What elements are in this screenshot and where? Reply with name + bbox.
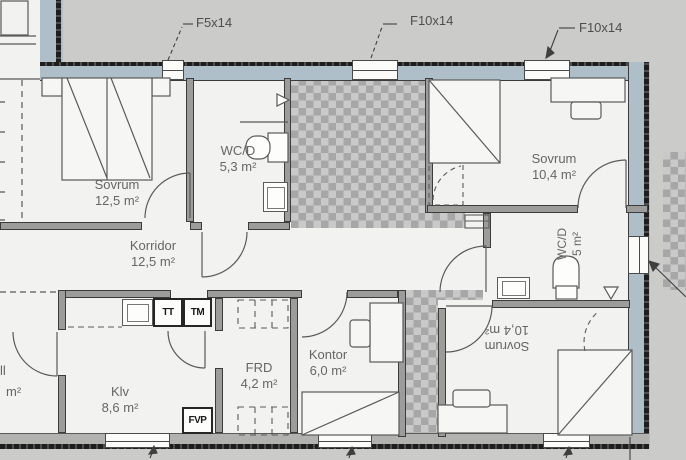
checker-strip-nook — [438, 290, 483, 300]
room-name-fragment: ll — [0, 363, 14, 379]
room-area: 12,5 m² — [108, 254, 198, 270]
door-kontor — [302, 292, 347, 337]
window-label-f5x14: F5x14 — [196, 15, 232, 30]
door-wcd-nw — [202, 232, 247, 277]
window-south-klv — [105, 433, 170, 448]
window-label-f10x14-a: F10x14 — [410, 13, 453, 28]
room-label-sovrum-ne: Sovrum 10,4 m² — [510, 151, 598, 183]
room-area: 8,6 m² — [85, 400, 155, 416]
room-area-fragment: m² — [6, 384, 36, 400]
window-south-sovrum — [543, 433, 590, 448]
wall-sovse-north — [492, 300, 630, 308]
closet-dashed-se — [584, 311, 599, 351]
room-name: FRD — [228, 360, 290, 376]
bed-single-ne — [429, 80, 500, 163]
wall-corridor-north-2 — [190, 222, 202, 230]
room-label-wcd-e: WC/D 5 m² — [555, 208, 585, 280]
room-area: 4,2 m² — [228, 376, 290, 392]
wall-wcde-west — [483, 213, 491, 248]
wall-sovne-south-2 — [626, 205, 648, 213]
sovrum-se-furniture — [438, 350, 632, 435]
room-name: Klv — [85, 384, 155, 400]
wall-northwest-hatch — [56, 0, 61, 64]
room-name: Sovrum — [72, 177, 162, 193]
room-name: Korridor — [108, 238, 198, 254]
window-f10x14-b — [524, 60, 570, 80]
room-name: Kontor — [292, 347, 364, 363]
window-f5x14 — [162, 60, 184, 80]
wall-sovse-west — [438, 308, 446, 437]
room-name: WC/D — [555, 208, 570, 280]
checker-strip-east — [663, 152, 686, 290]
wall-kontor-east — [398, 290, 406, 437]
room-area: 10,4 m² — [462, 322, 552, 338]
wall-klv-frd-2 — [215, 368, 223, 433]
room-name: Sovrum — [462, 338, 552, 354]
dryer-box: TT — [153, 298, 183, 327]
room-label-klv: Klv 8,6 m² — [85, 384, 155, 416]
bed-double — [42, 78, 170, 180]
wall-corridor-north-1 — [0, 222, 142, 230]
window-east-wcd — [628, 236, 649, 274]
desk-ne — [551, 78, 625, 119]
checker-zone-center — [291, 78, 425, 228]
room-area: 6,0 m² — [292, 363, 364, 379]
room-label-kontor: Kontor 6,0 m² — [292, 347, 364, 379]
wall-corridor-south-1 — [58, 290, 171, 298]
floor-plan: TT TM FVP — [0, 0, 686, 460]
checker-strip-kontor — [406, 290, 438, 437]
wall-hall-east-2 — [58, 375, 66, 433]
room-label-sovrum-se: Sovrum 10,4 m² — [462, 322, 552, 354]
laundry-sink — [122, 299, 153, 326]
wall-corridor-south-3 — [347, 290, 398, 298]
room-label-hall-fragment: ll — [0, 363, 14, 379]
room-name: Sovrum — [510, 151, 598, 167]
door-nook — [440, 246, 486, 292]
closet-dashed-ne — [429, 163, 463, 205]
wall-sovnw-wcd — [186, 78, 194, 222]
room-label-sovrum-nw: Sovrum 12,5 m² — [72, 177, 162, 209]
room-name: WC/D — [202, 143, 274, 159]
door-hall — [13, 332, 57, 376]
wall-corridor-north-3 — [248, 222, 290, 230]
washer-label: TM — [191, 307, 204, 318]
heatpump-label: FVP — [189, 415, 207, 426]
wcd-e-sink — [497, 277, 530, 299]
room-label-korridor: Korridor 12,5 m² — [108, 238, 198, 270]
room-area: 5 m² — [570, 208, 585, 280]
wall-sovne-west — [425, 78, 433, 213]
room-area: 12,5 m² — [72, 193, 162, 209]
window-south-kontor — [318, 433, 372, 448]
window-f10x14-a — [352, 60, 398, 80]
window-label-f10x14-b: F10x14 — [579, 20, 622, 35]
door-klv — [168, 331, 205, 368]
wall-hall-east-1 — [58, 290, 66, 330]
wall-klv-frd-1 — [215, 298, 223, 331]
exterior-ground-bottom — [0, 448, 686, 460]
room-area: 5,3 m² — [202, 159, 274, 175]
wcd-e-sink-basin — [502, 281, 526, 296]
wcd-nw-sink-basin — [267, 187, 285, 209]
heatpump-box: FVP — [182, 407, 213, 434]
wcd-nw-sink — [263, 182, 288, 212]
checker-zone-center-ext — [425, 213, 465, 228]
room-area: 10,4 m² — [510, 167, 598, 183]
shower-drain-icon-2 — [604, 287, 618, 299]
dryer-label: TT — [162, 307, 173, 318]
wall-corridor-south-2 — [207, 290, 302, 298]
room-label-frd: FRD 4,2 m² — [228, 360, 290, 392]
room-label-wcd-nw: WC/D 5,3 m² — [202, 143, 274, 175]
washer-box: TM — [183, 298, 212, 327]
laundry-sink-basin — [127, 304, 149, 322]
room-label-hall-area-fragment: m² — [6, 384, 36, 400]
